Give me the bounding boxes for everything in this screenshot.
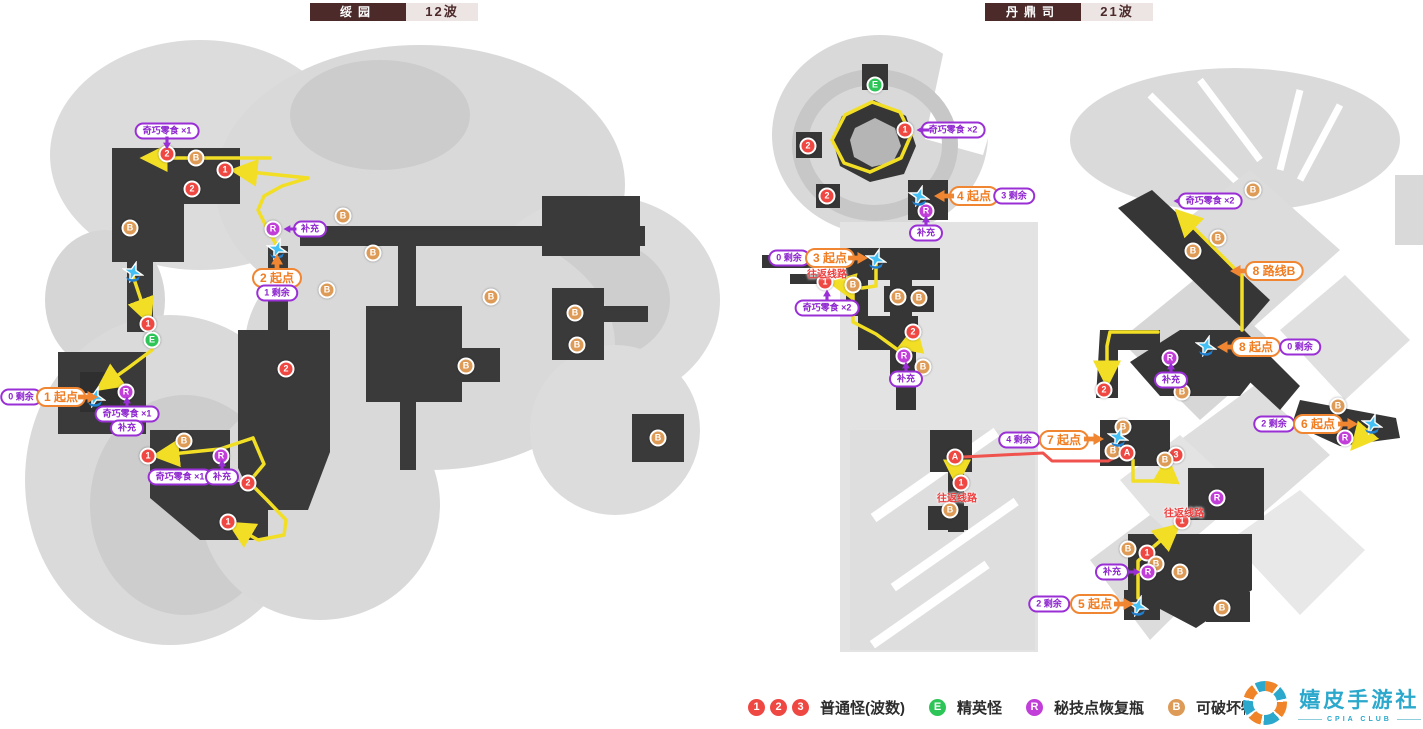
label-pill: 补充 bbox=[889, 371, 923, 388]
map-guide-image: 2B12B1ERRBBB2BBBBBB1R21奇巧零食 ×1补充2 起点1 剩余… bbox=[0, 0, 1423, 729]
watermark: 嬉皮手游社 CPIA CLUB bbox=[1243, 681, 1423, 725]
start-point-icon bbox=[908, 185, 930, 207]
map-title: 绥园 bbox=[310, 3, 406, 21]
arrow-right-icon bbox=[1338, 418, 1358, 430]
label-pill: 4 剩余 bbox=[998, 432, 1040, 449]
annotation-overlay: 2B12B1ERRBBB2BBBBBB1R21奇巧零食 ×1补充2 起点1 剩余… bbox=[0, 0, 1423, 729]
break-marker: B bbox=[569, 337, 586, 354]
wave-marker: 2 bbox=[278, 361, 295, 378]
start-point-icon bbox=[1361, 413, 1383, 435]
break-marker: B bbox=[911, 290, 928, 307]
label-pill: 补充 bbox=[1154, 372, 1188, 389]
break-marker: B bbox=[122, 220, 139, 237]
break-marker: B bbox=[1330, 398, 1347, 415]
watermark-title: 嬉皮手游社 bbox=[1299, 684, 1419, 714]
map-header-dandingsi: 丹鼎司 21波 bbox=[985, 3, 1153, 21]
break-marker: B bbox=[1210, 230, 1227, 247]
wave-marker: 1 bbox=[140, 316, 157, 333]
break-marker: B bbox=[1172, 564, 1189, 581]
legend-wave-marker: 1 bbox=[748, 699, 765, 716]
break-marker: B bbox=[176, 433, 193, 450]
arrow-right-icon bbox=[1084, 433, 1104, 445]
wave-marker: 1 bbox=[897, 122, 914, 139]
label-pill: 5 起点 bbox=[1070, 594, 1120, 614]
wave-marker: 2 bbox=[905, 324, 922, 341]
label-pill: 奇巧零食 ×1 bbox=[148, 469, 213, 486]
wave-marker: 2 bbox=[184, 181, 201, 198]
label-pill: 4 起点 bbox=[949, 186, 999, 206]
wave-count-badge: 21波 bbox=[1081, 3, 1153, 21]
wave-count-badge: 12波 bbox=[406, 3, 478, 21]
route-note: 往返线路 bbox=[1164, 505, 1204, 520]
legend-tech-marker: R bbox=[1026, 699, 1043, 716]
start-point-icon bbox=[122, 261, 144, 283]
label-pill: 补充 bbox=[293, 221, 327, 238]
wave-marker: 1 bbox=[217, 162, 234, 179]
label-pill: 1 剩余 bbox=[256, 285, 298, 302]
arrow-down-icon bbox=[161, 139, 174, 147]
watermark-logo-icon bbox=[1243, 681, 1287, 725]
map-header-suiyuan: 绥园 12波 bbox=[310, 3, 478, 21]
wave-marker: 2 bbox=[1096, 382, 1113, 399]
label-pill: 奇巧零食 ×2 bbox=[1178, 193, 1243, 210]
label-pill: 0 剩余 bbox=[768, 250, 810, 267]
route-note: 往返线路 bbox=[937, 490, 977, 505]
label-pill: 8 起点 bbox=[1231, 337, 1281, 357]
wave-marker: 1 bbox=[140, 448, 157, 465]
label-pill: 补充 bbox=[110, 420, 144, 437]
break-marker: B bbox=[458, 358, 475, 375]
arrow-right-icon bbox=[78, 391, 98, 403]
label-pill: 2 剩余 bbox=[1253, 416, 1295, 433]
start-point-icon bbox=[1195, 335, 1217, 357]
label-pill: 奇巧零食 ×2 bbox=[795, 300, 860, 317]
break-marker: B bbox=[1120, 541, 1137, 558]
label-pill: 补充 bbox=[205, 469, 239, 486]
label-pill: 2 剩余 bbox=[1028, 596, 1070, 613]
break-marker: B bbox=[567, 305, 584, 322]
arrow-left-icon bbox=[934, 190, 954, 202]
break-marker: B bbox=[365, 245, 382, 262]
tech-marker: R bbox=[1140, 564, 1157, 581]
break-marker: B bbox=[890, 289, 907, 306]
label-pill: 0 剩余 bbox=[1279, 339, 1321, 356]
arrow-right-icon bbox=[1114, 598, 1134, 610]
elite-marker: E bbox=[867, 77, 884, 94]
label-pill: 8 路线B bbox=[1245, 261, 1304, 281]
label-pill: 3 剩余 bbox=[993, 188, 1035, 205]
legend-label: 普通怪(波数) bbox=[820, 697, 905, 718]
legend-wave-marker: 2 bbox=[770, 699, 787, 716]
legend: 123普通怪(波数)E精英怪R秘技点恢复瓶B可破坏物 bbox=[748, 698, 1245, 716]
break-marker: B bbox=[188, 150, 205, 167]
legend-label: 精英怪 bbox=[957, 697, 1002, 718]
label-pill: 7 起点 bbox=[1039, 430, 1089, 450]
arrow-right-icon bbox=[1128, 568, 1141, 576]
label-pill: 奇巧零食 ×2 bbox=[921, 122, 986, 139]
watermark-subtitle: CPIA CLUB bbox=[1293, 716, 1423, 723]
arrow-left-icon bbox=[284, 225, 297, 233]
tech-marker: R bbox=[1337, 430, 1354, 447]
break-marker: B bbox=[650, 430, 667, 447]
break-marker: B bbox=[319, 282, 336, 299]
legend-elite-marker: E bbox=[929, 699, 946, 716]
arrow-left-icon bbox=[917, 126, 930, 134]
wave-marker: 2 bbox=[240, 475, 257, 492]
break-marker: B bbox=[1185, 243, 1202, 260]
A-marker: A bbox=[947, 449, 964, 466]
wave-marker: 2 bbox=[800, 138, 817, 155]
arrow-right-icon bbox=[848, 252, 868, 264]
legend-break-marker: B bbox=[1168, 699, 1185, 716]
break-marker: B bbox=[1245, 182, 1262, 199]
wave-marker: 2 bbox=[819, 188, 836, 205]
label-pill: 补充 bbox=[1095, 564, 1129, 581]
map-title: 丹鼎司 bbox=[985, 3, 1081, 21]
legend-label: 可破坏物 bbox=[1196, 697, 1245, 718]
tech-marker: R bbox=[265, 221, 282, 238]
break-marker: B bbox=[483, 289, 500, 306]
start-point-icon bbox=[865, 248, 887, 270]
break-marker: B bbox=[1157, 452, 1174, 469]
legend-label: 秘技点恢复瓶 bbox=[1054, 697, 1144, 718]
wave-marker: 1 bbox=[220, 514, 237, 531]
start-point-icon bbox=[1107, 426, 1129, 448]
break-marker: B bbox=[1214, 600, 1231, 617]
break-marker: B bbox=[845, 277, 862, 294]
legend-wave-marker: 3 bbox=[792, 699, 809, 716]
label-pill: 补充 bbox=[909, 225, 943, 242]
break-marker: B bbox=[335, 208, 352, 225]
route-note: 往返线路 bbox=[807, 266, 847, 281]
watermark-text: 嬉皮手游社 CPIA CLUB bbox=[1293, 684, 1423, 723]
tech-marker: R bbox=[1209, 490, 1226, 507]
elite-marker: E bbox=[144, 332, 161, 349]
label-pill: 6 起点 bbox=[1293, 414, 1343, 434]
